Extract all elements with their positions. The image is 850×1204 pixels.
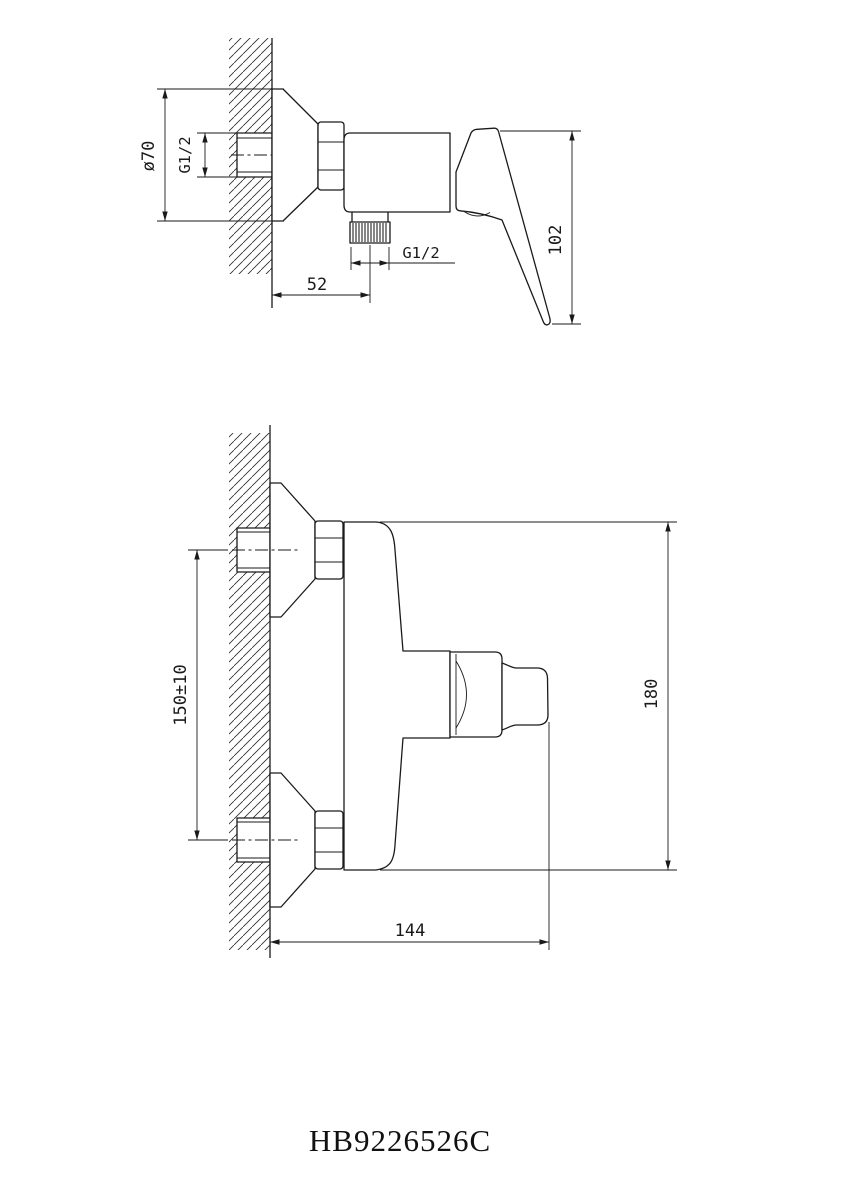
dim-label-outlet-thread: G1/2 xyxy=(402,244,439,262)
escutcheon xyxy=(270,773,315,907)
outlet-threads xyxy=(350,222,390,243)
escutcheon xyxy=(272,89,318,221)
dim-overall-height: 180 xyxy=(642,522,671,870)
dim-label-escutcheon-diameter: ø70 xyxy=(139,141,159,172)
outlet-connector xyxy=(350,212,390,243)
faucet-body xyxy=(344,133,450,212)
faucet-body xyxy=(344,522,450,870)
dim-label-outlet-offset: 52 xyxy=(307,275,327,295)
side-view: ø70 G1/2 52 G1/2 102 xyxy=(139,38,581,325)
drawing-sheet: ø70 G1/2 52 G1/2 102 xyxy=(0,0,850,1204)
lever-handle xyxy=(456,128,550,325)
hex-nut xyxy=(315,811,343,869)
hex-nut xyxy=(315,521,343,579)
lever-handle xyxy=(502,663,548,730)
dim-outlet-thread: G1/2 xyxy=(351,244,455,270)
dim-label-overall-depth: 144 xyxy=(395,921,426,941)
technical-drawing: ø70 G1/2 52 G1/2 102 xyxy=(0,0,850,1204)
dim-label-inlet-thread: G1/2 xyxy=(176,136,194,173)
dim-label-overall-height: 180 xyxy=(642,679,662,710)
model-code: HB9226526C xyxy=(309,1123,491,1158)
escutcheon xyxy=(270,483,315,617)
dim-label-handle-height: 102 xyxy=(546,225,566,256)
dim-overall-depth: 144 xyxy=(270,921,549,945)
plan-view: 150±10 180 144 xyxy=(171,425,677,958)
dim-inlet-spacing: 150±10 xyxy=(171,550,228,840)
cartridge-housing xyxy=(450,652,502,737)
dim-outlet-offset: 52 xyxy=(272,245,370,303)
dim-label-inlet-spacing: 150±10 xyxy=(171,664,191,725)
wall-hatch xyxy=(229,433,270,950)
dim-inlet-thread: G1/2 xyxy=(176,133,237,177)
hex-nut xyxy=(318,122,344,190)
